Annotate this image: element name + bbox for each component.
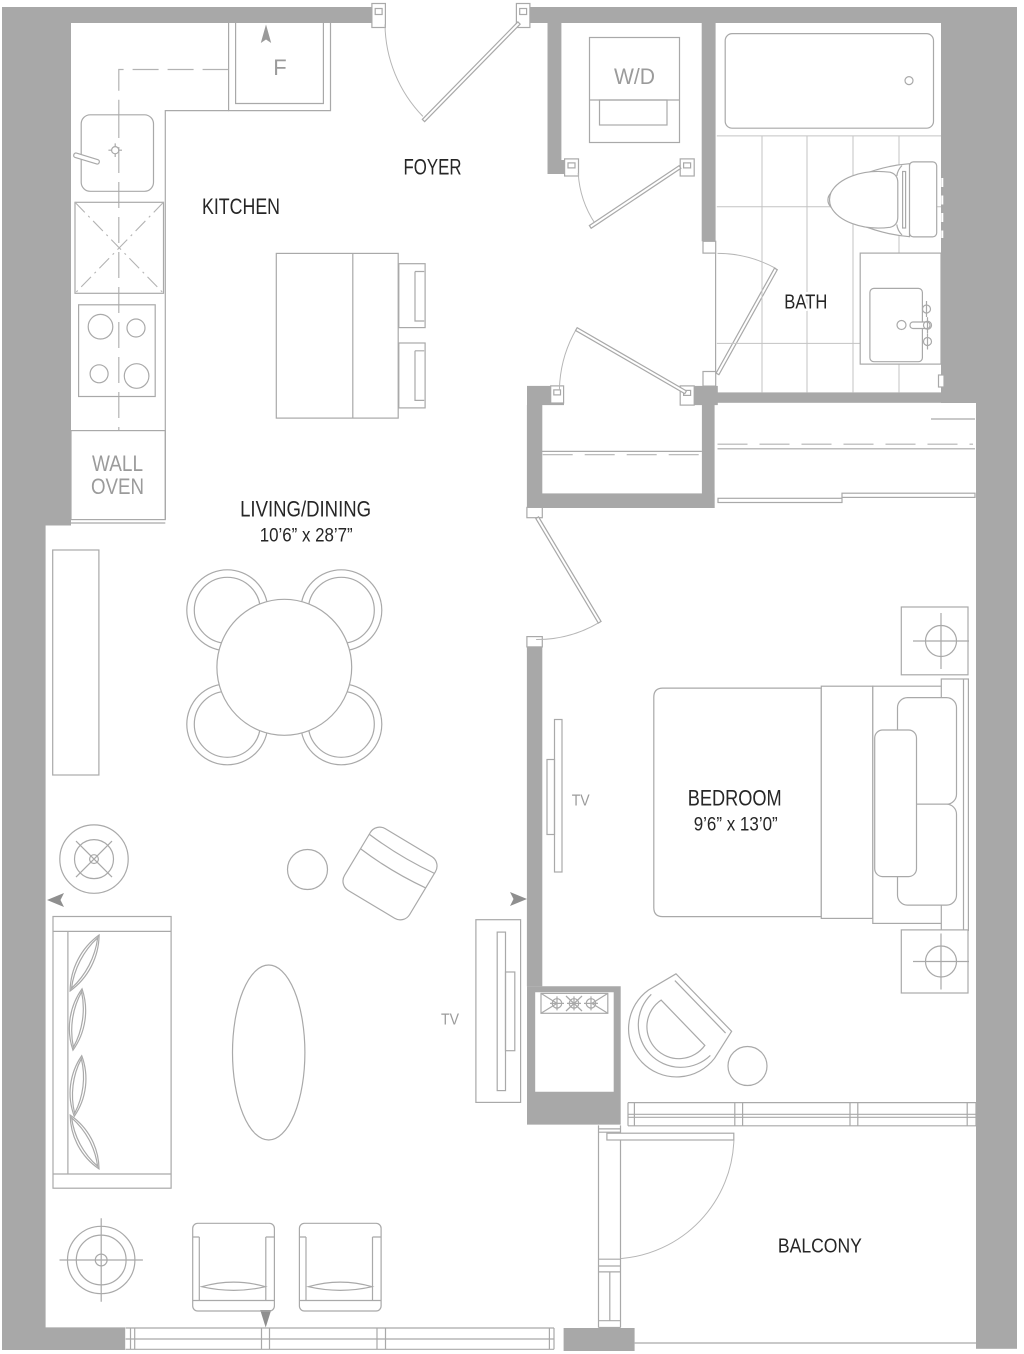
svg-text:TV: TV (572, 793, 590, 810)
svg-text:BEDROOM: BEDROOM (688, 786, 782, 811)
svg-text:WALL: WALL (92, 451, 143, 476)
svg-text:LIVING/DINING: LIVING/DINING (240, 497, 371, 522)
svg-text:9’6” x 13’0”: 9’6” x 13’0” (694, 814, 778, 836)
svg-text:W/D: W/D (614, 64, 655, 89)
svg-text:10’6” x 28’7”: 10’6” x 28’7” (260, 525, 353, 547)
svg-text:FOYER: FOYER (404, 155, 462, 180)
svg-text:TV: TV (441, 1012, 459, 1029)
svg-text:F: F (273, 55, 286, 80)
svg-text:BALCONY: BALCONY (778, 1236, 862, 1258)
svg-text:BATH: BATH (784, 292, 827, 314)
svg-text:OVEN: OVEN (91, 474, 144, 499)
svg-text:KITCHEN: KITCHEN (202, 194, 280, 219)
